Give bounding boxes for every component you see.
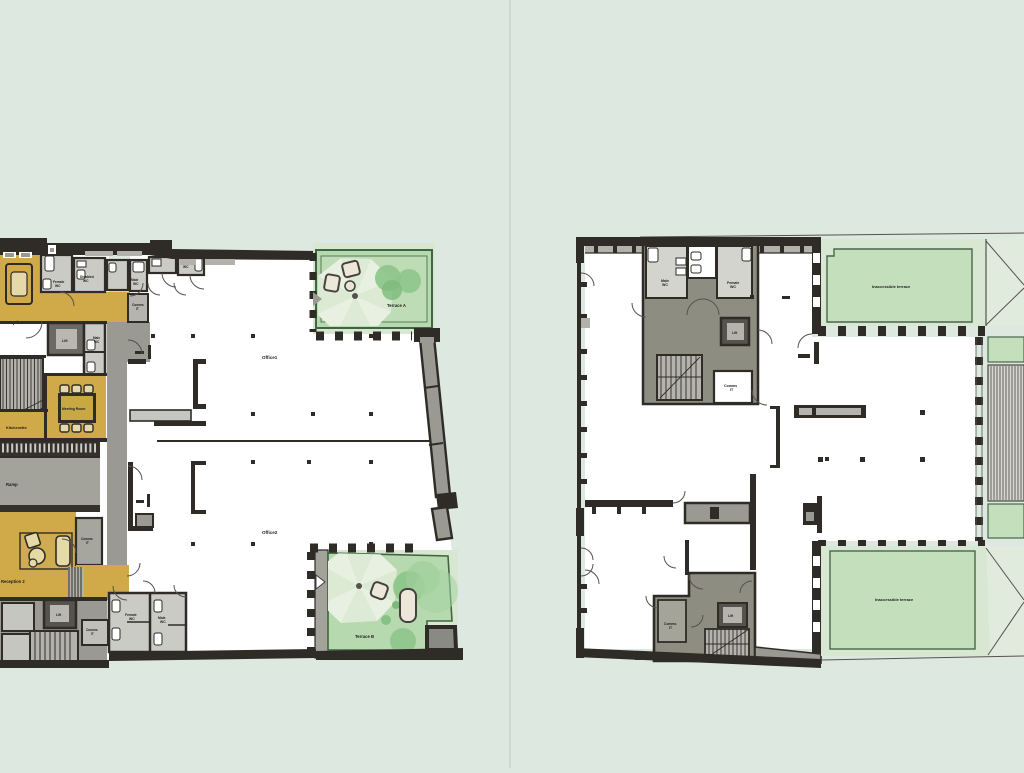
svg-text:Lift: Lift bbox=[728, 614, 734, 618]
svg-text:IT: IT bbox=[136, 307, 139, 311]
svg-text:WC: WC bbox=[129, 617, 135, 621]
svg-text:Terrace B: Terrace B bbox=[355, 634, 374, 639]
svg-text:Lift: Lift bbox=[56, 613, 62, 617]
svg-text:Kitchenette: Kitchenette bbox=[6, 426, 27, 430]
svg-text:Ramp: Ramp bbox=[6, 482, 18, 487]
svg-text:WC: WC bbox=[55, 284, 61, 288]
svg-text:WC: WC bbox=[94, 340, 100, 344]
svg-text:WC: WC bbox=[83, 279, 89, 283]
svg-text:Inaccessible terrace: Inaccessible terrace bbox=[875, 597, 914, 602]
svg-text:Reception 2: Reception 2 bbox=[1, 579, 25, 584]
svg-text:Lift: Lift bbox=[732, 331, 738, 335]
svg-text:IT: IT bbox=[86, 541, 89, 545]
svg-text:WC: WC bbox=[160, 620, 166, 624]
svg-text:IT: IT bbox=[91, 632, 94, 636]
svg-text:WC: WC bbox=[662, 283, 668, 287]
svg-text:Meeting Room: Meeting Room bbox=[62, 407, 85, 411]
svg-text:Terrace A: Terrace A bbox=[387, 303, 406, 308]
svg-text:Lift: Lift bbox=[62, 339, 68, 343]
svg-text:WC: WC bbox=[183, 265, 189, 269]
svg-text:WC: WC bbox=[133, 282, 139, 286]
svg-text:Inaccessible terrace: Inaccessible terrace bbox=[872, 284, 911, 289]
svg-text:WC: WC bbox=[730, 285, 736, 289]
svg-text:Office1: Office1 bbox=[262, 355, 278, 360]
svg-text:Office2: Office2 bbox=[262, 530, 278, 535]
